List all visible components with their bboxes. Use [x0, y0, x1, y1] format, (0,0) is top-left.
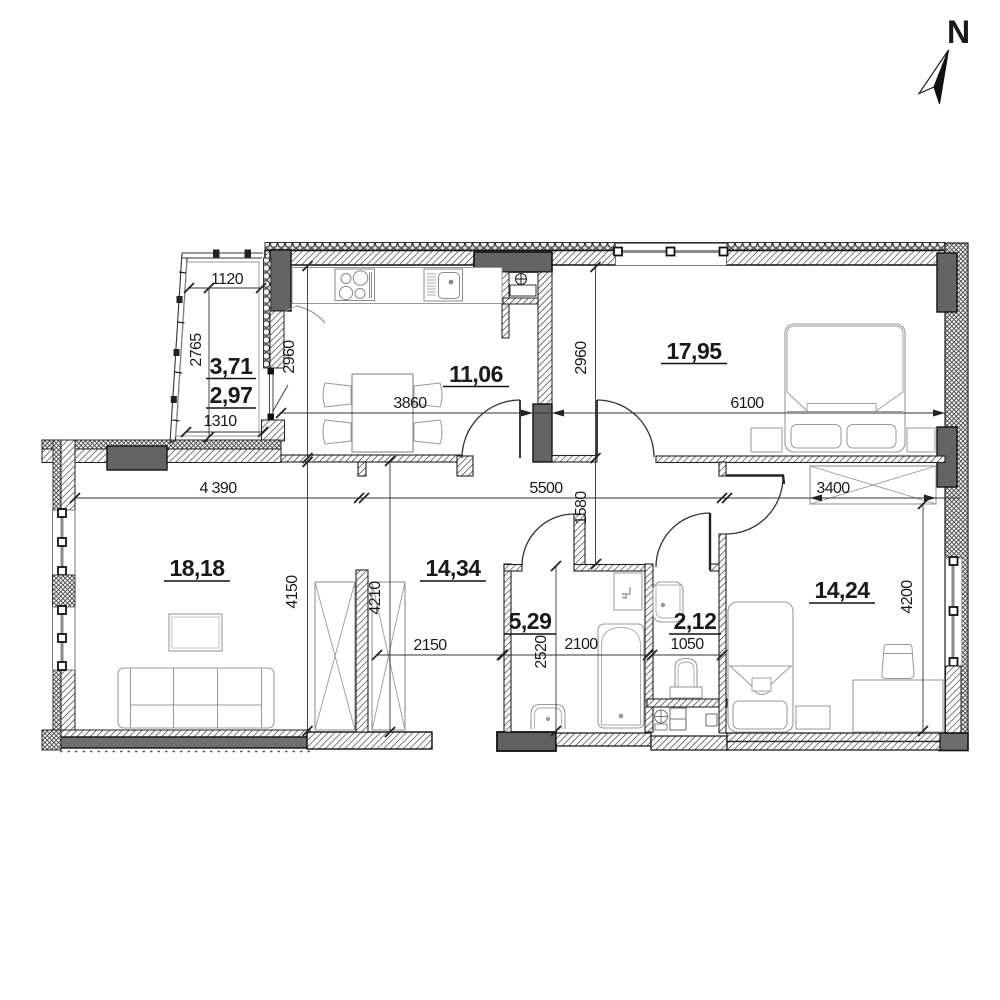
svg-text:4210: 4210 — [367, 581, 384, 615]
svg-text:4 390: 4 390 — [199, 480, 237, 497]
svg-text:3,71: 3,71 — [210, 353, 253, 379]
svg-text:14,24: 14,24 — [814, 577, 870, 603]
svg-text:2,97: 2,97 — [210, 382, 253, 408]
svg-text:2520: 2520 — [533, 635, 550, 669]
svg-text:2960: 2960 — [281, 340, 298, 374]
svg-text:3400: 3400 — [816, 480, 850, 497]
svg-text:5500: 5500 — [529, 480, 563, 497]
svg-text:N: N — [947, 14, 970, 50]
svg-text:3860: 3860 — [393, 395, 427, 412]
svg-text:18,18: 18,18 — [169, 555, 225, 581]
svg-text:2960: 2960 — [573, 341, 590, 375]
svg-text:1580: 1580 — [573, 491, 590, 525]
svg-text:17,95: 17,95 — [666, 338, 722, 364]
svg-text:6100: 6100 — [730, 395, 764, 412]
svg-text:1050: 1050 — [670, 636, 704, 653]
svg-text:4200: 4200 — [899, 580, 916, 614]
svg-text:14,34: 14,34 — [425, 555, 481, 581]
svg-text:1310: 1310 — [203, 413, 237, 430]
svg-text:11,06: 11,06 — [449, 361, 503, 387]
svg-text:1120: 1120 — [211, 271, 244, 288]
svg-text:2,12: 2,12 — [674, 608, 717, 634]
svg-text:2150: 2150 — [413, 637, 447, 654]
svg-text:2100: 2100 — [564, 636, 598, 653]
svg-text:4150: 4150 — [284, 575, 301, 609]
svg-text:2765: 2765 — [188, 333, 205, 367]
svg-text:5,29: 5,29 — [509, 608, 552, 634]
